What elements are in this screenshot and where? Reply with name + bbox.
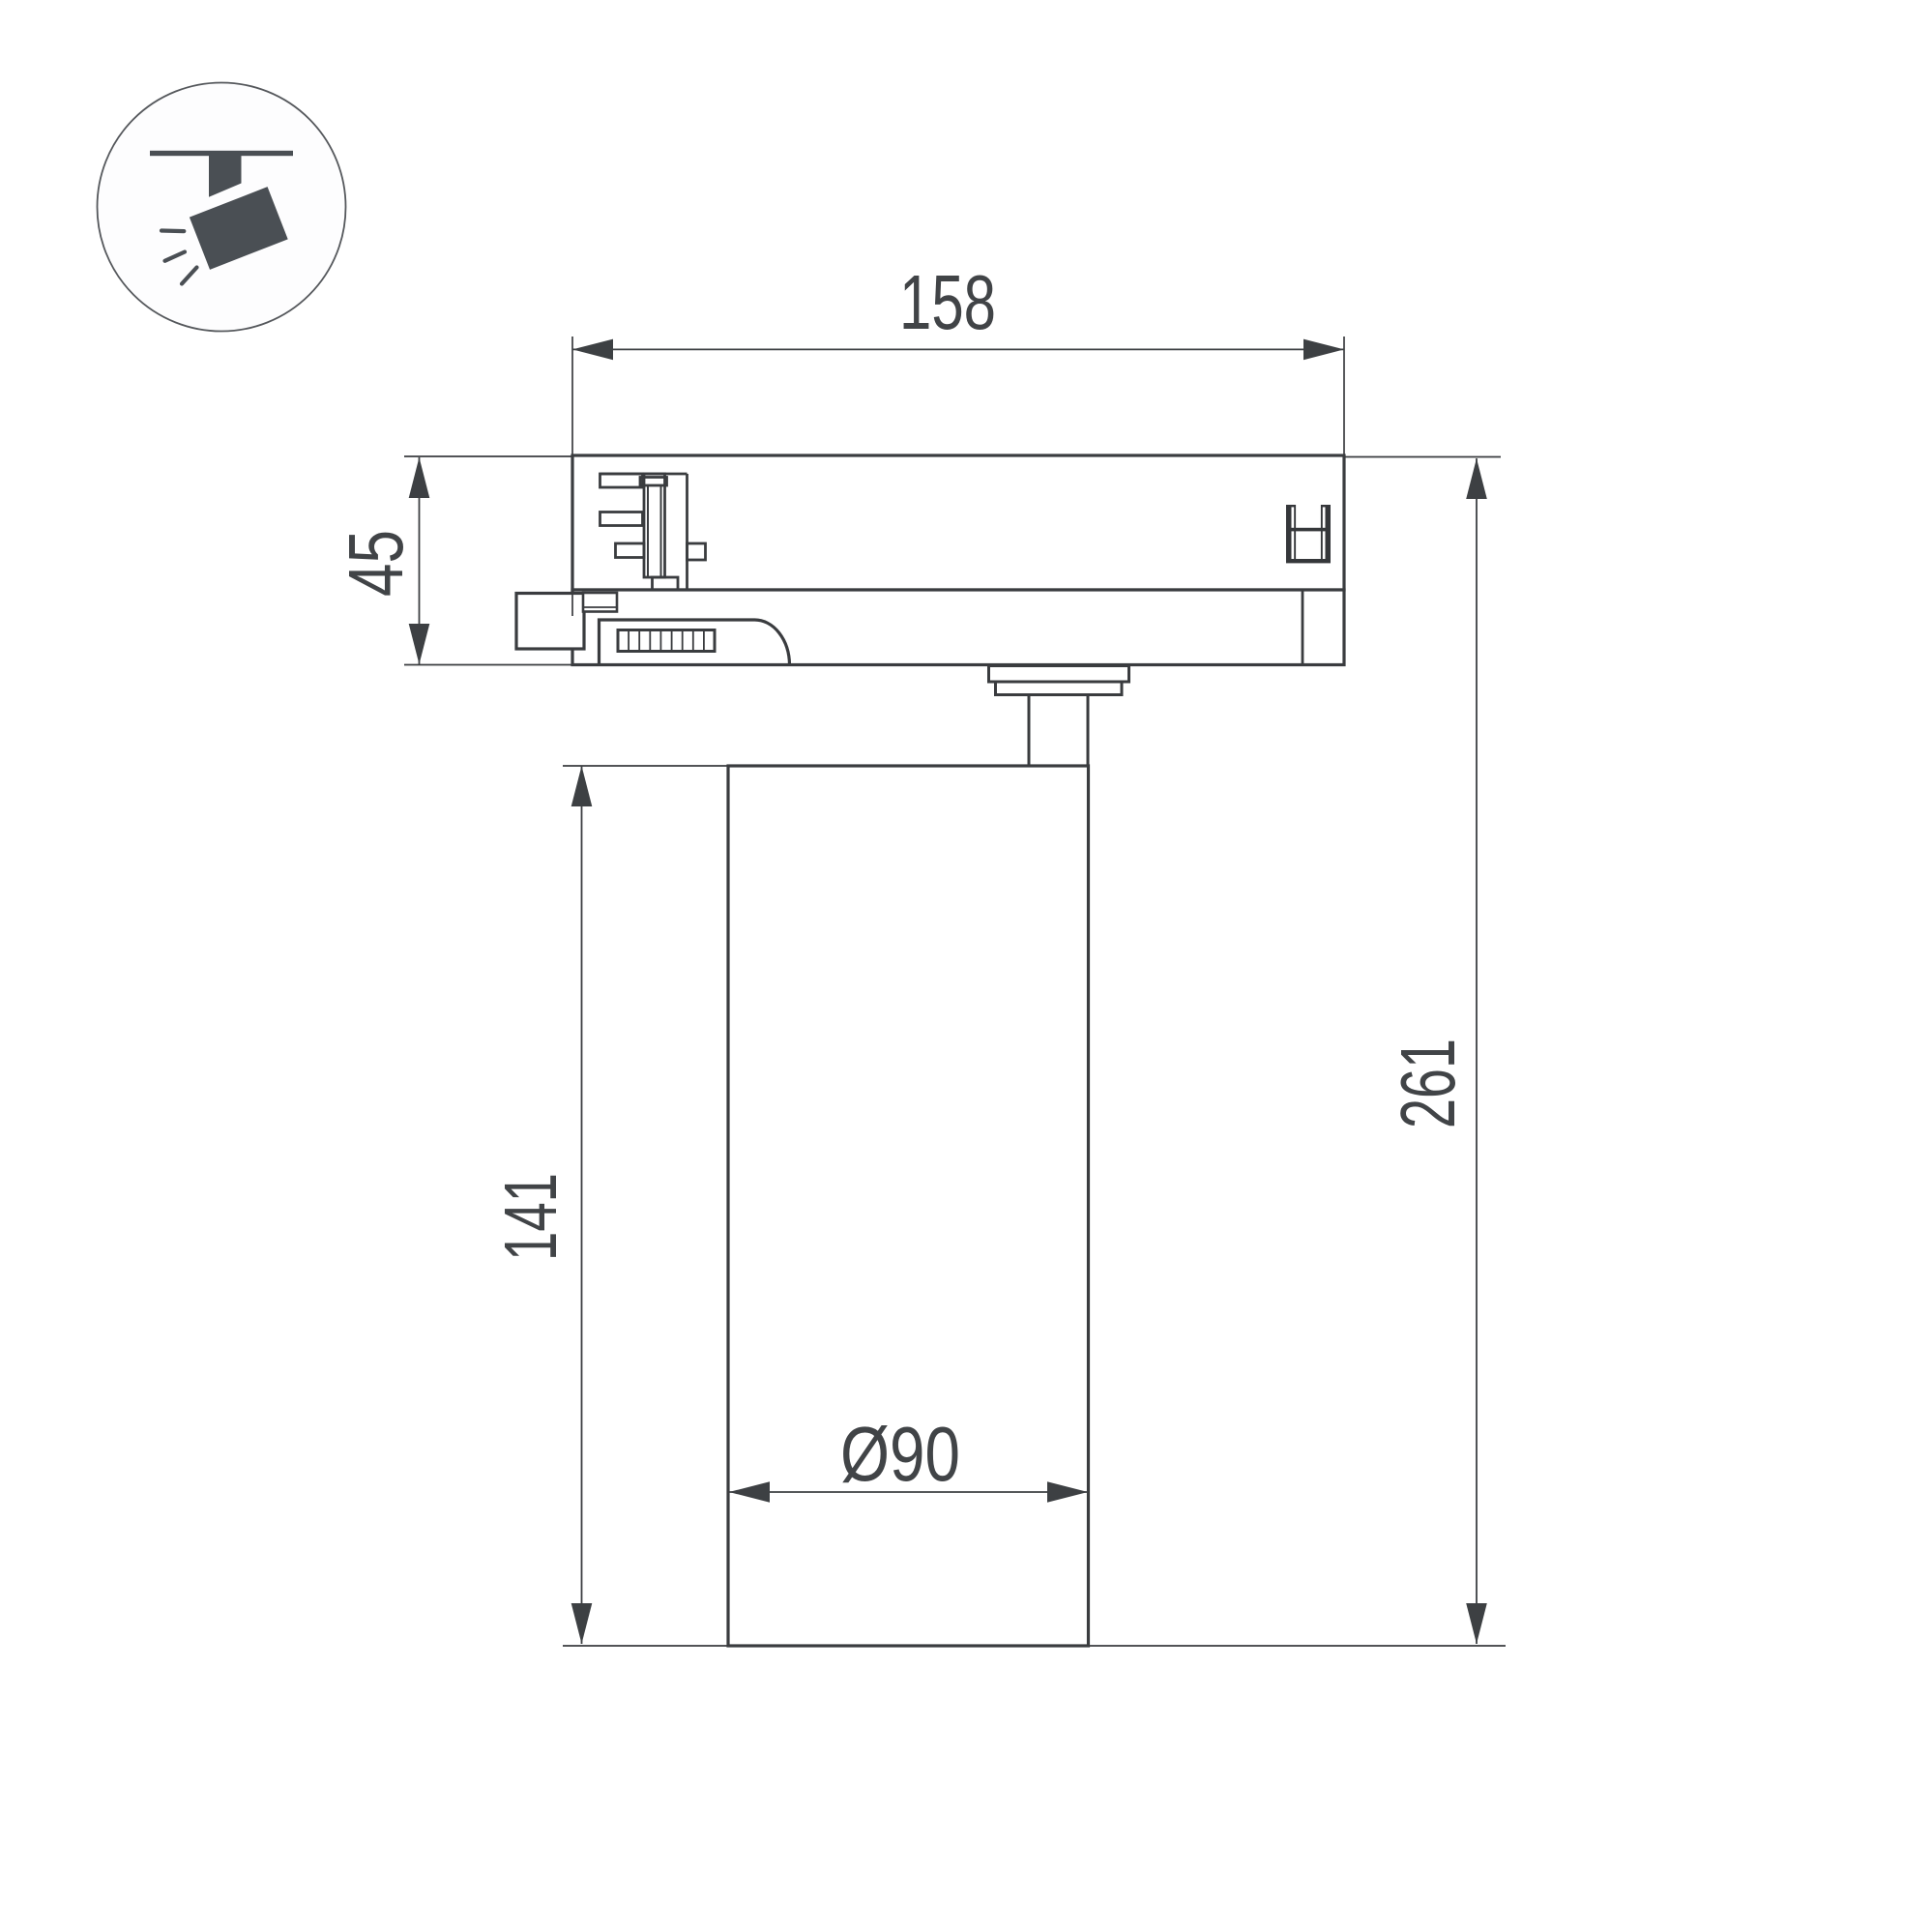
- svg-text:141: 141: [489, 1173, 572, 1261]
- svg-text:158: 158: [899, 259, 996, 345]
- svg-text:261: 261: [1385, 1039, 1471, 1128]
- svg-text:45: 45: [333, 530, 419, 597]
- svg-text:Ø90: Ø90: [840, 1411, 960, 1497]
